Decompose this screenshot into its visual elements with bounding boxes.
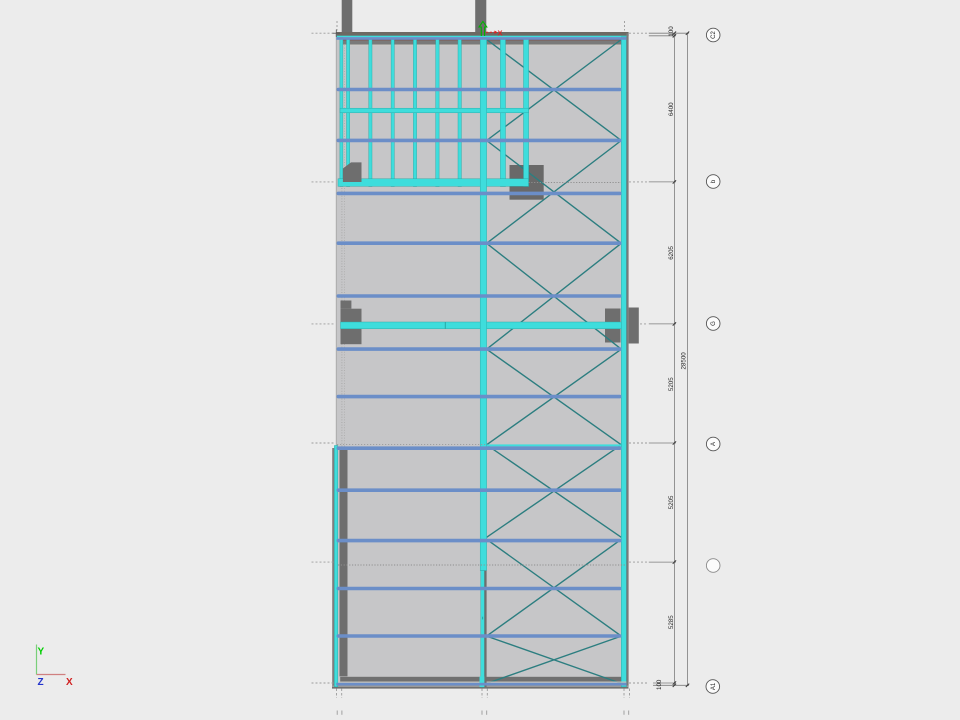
svg-text:5285: 5285 [668, 615, 675, 629]
svg-text:5205: 5205 [668, 377, 675, 391]
svg-text:28500: 28500 [680, 352, 687, 370]
svg-text:G: G [711, 321, 717, 326]
svg-text:100: 100 [668, 26, 675, 37]
svg-text:X: X [498, 28, 503, 37]
svg-text:6400: 6400 [668, 102, 675, 116]
svg-text:C2: C2 [711, 31, 717, 39]
svg-text:6205: 6205 [668, 245, 675, 259]
svg-text:Z: Z [38, 677, 44, 688]
svg-text:A: A [711, 442, 717, 446]
svg-text:Y: Y [38, 647, 45, 658]
svg-text:A1: A1 [711, 682, 717, 690]
svg-text:5205: 5205 [668, 495, 675, 509]
svg-text:100: 100 [656, 679, 663, 690]
svg-text:X: X [66, 677, 73, 688]
